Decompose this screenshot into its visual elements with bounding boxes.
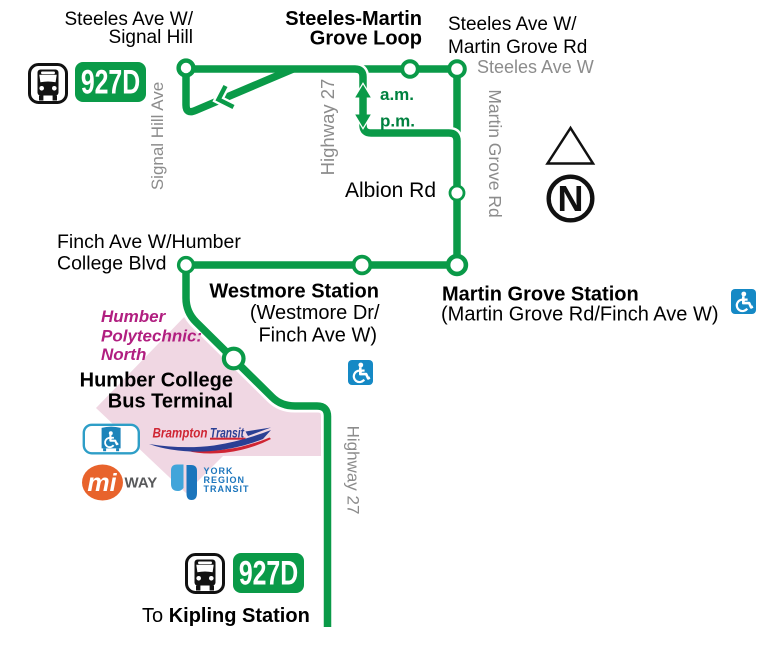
- svg-text:927D: 927D: [239, 555, 298, 593]
- svg-text:Signal Hill Ave: Signal Hill Ave: [148, 82, 167, 190]
- svg-text:Signal Hill: Signal Hill: [109, 27, 193, 48]
- svg-text:Humber: Humber: [101, 307, 167, 326]
- svg-text:North: North: [101, 345, 146, 364]
- svg-text:Steeles Ave W/: Steeles Ave W/: [448, 14, 577, 35]
- svg-text:Westmore Station: Westmore Station: [209, 281, 379, 303]
- svg-text:Humber College: Humber College: [80, 370, 233, 392]
- svg-text:WAY: WAY: [125, 475, 158, 492]
- svg-text:Brampton: Brampton: [153, 426, 208, 441]
- svg-text:Albion Rd: Albion Rd: [345, 179, 436, 202]
- svg-text:p.m.: p.m.: [380, 112, 415, 131]
- svg-text:(Martin Grove Rd/Finch Ave W): (Martin Grove Rd/Finch Ave W): [441, 304, 718, 326]
- svg-text:Martin Grove Rd: Martin Grove Rd: [485, 89, 505, 217]
- svg-text:(Westmore Dr/: (Westmore Dr/: [250, 302, 380, 324]
- svg-text:Martin Grove Rd: Martin Grove Rd: [448, 37, 587, 58]
- svg-text:Grove Loop: Grove Loop: [310, 28, 422, 50]
- svg-text:College Blvd: College Blvd: [57, 253, 166, 275]
- svg-text:Highway 27: Highway 27: [344, 426, 363, 515]
- svg-text:TRANSIT: TRANSIT: [204, 484, 250, 494]
- svg-text:mi: mi: [87, 469, 117, 497]
- svg-text:Finch Ave W/Humber: Finch Ave W/Humber: [57, 231, 241, 253]
- svg-text:To Kipling Station: To Kipling Station: [142, 605, 310, 627]
- svg-text:Martin Grove Station: Martin Grove Station: [442, 284, 639, 306]
- svg-text:Steeles Ave W: Steeles Ave W: [477, 57, 594, 77]
- svg-text:N: N: [558, 178, 584, 219]
- svg-text:a.m.: a.m.: [380, 85, 414, 104]
- svg-text:Bus Terminal: Bus Terminal: [108, 391, 233, 413]
- svg-text:927D: 927D: [81, 64, 140, 102]
- svg-text:Finch Ave W): Finch Ave W): [258, 325, 377, 347]
- svg-text:Highway 27: Highway 27: [317, 79, 338, 176]
- svg-text:Polytechnic:: Polytechnic:: [101, 327, 202, 346]
